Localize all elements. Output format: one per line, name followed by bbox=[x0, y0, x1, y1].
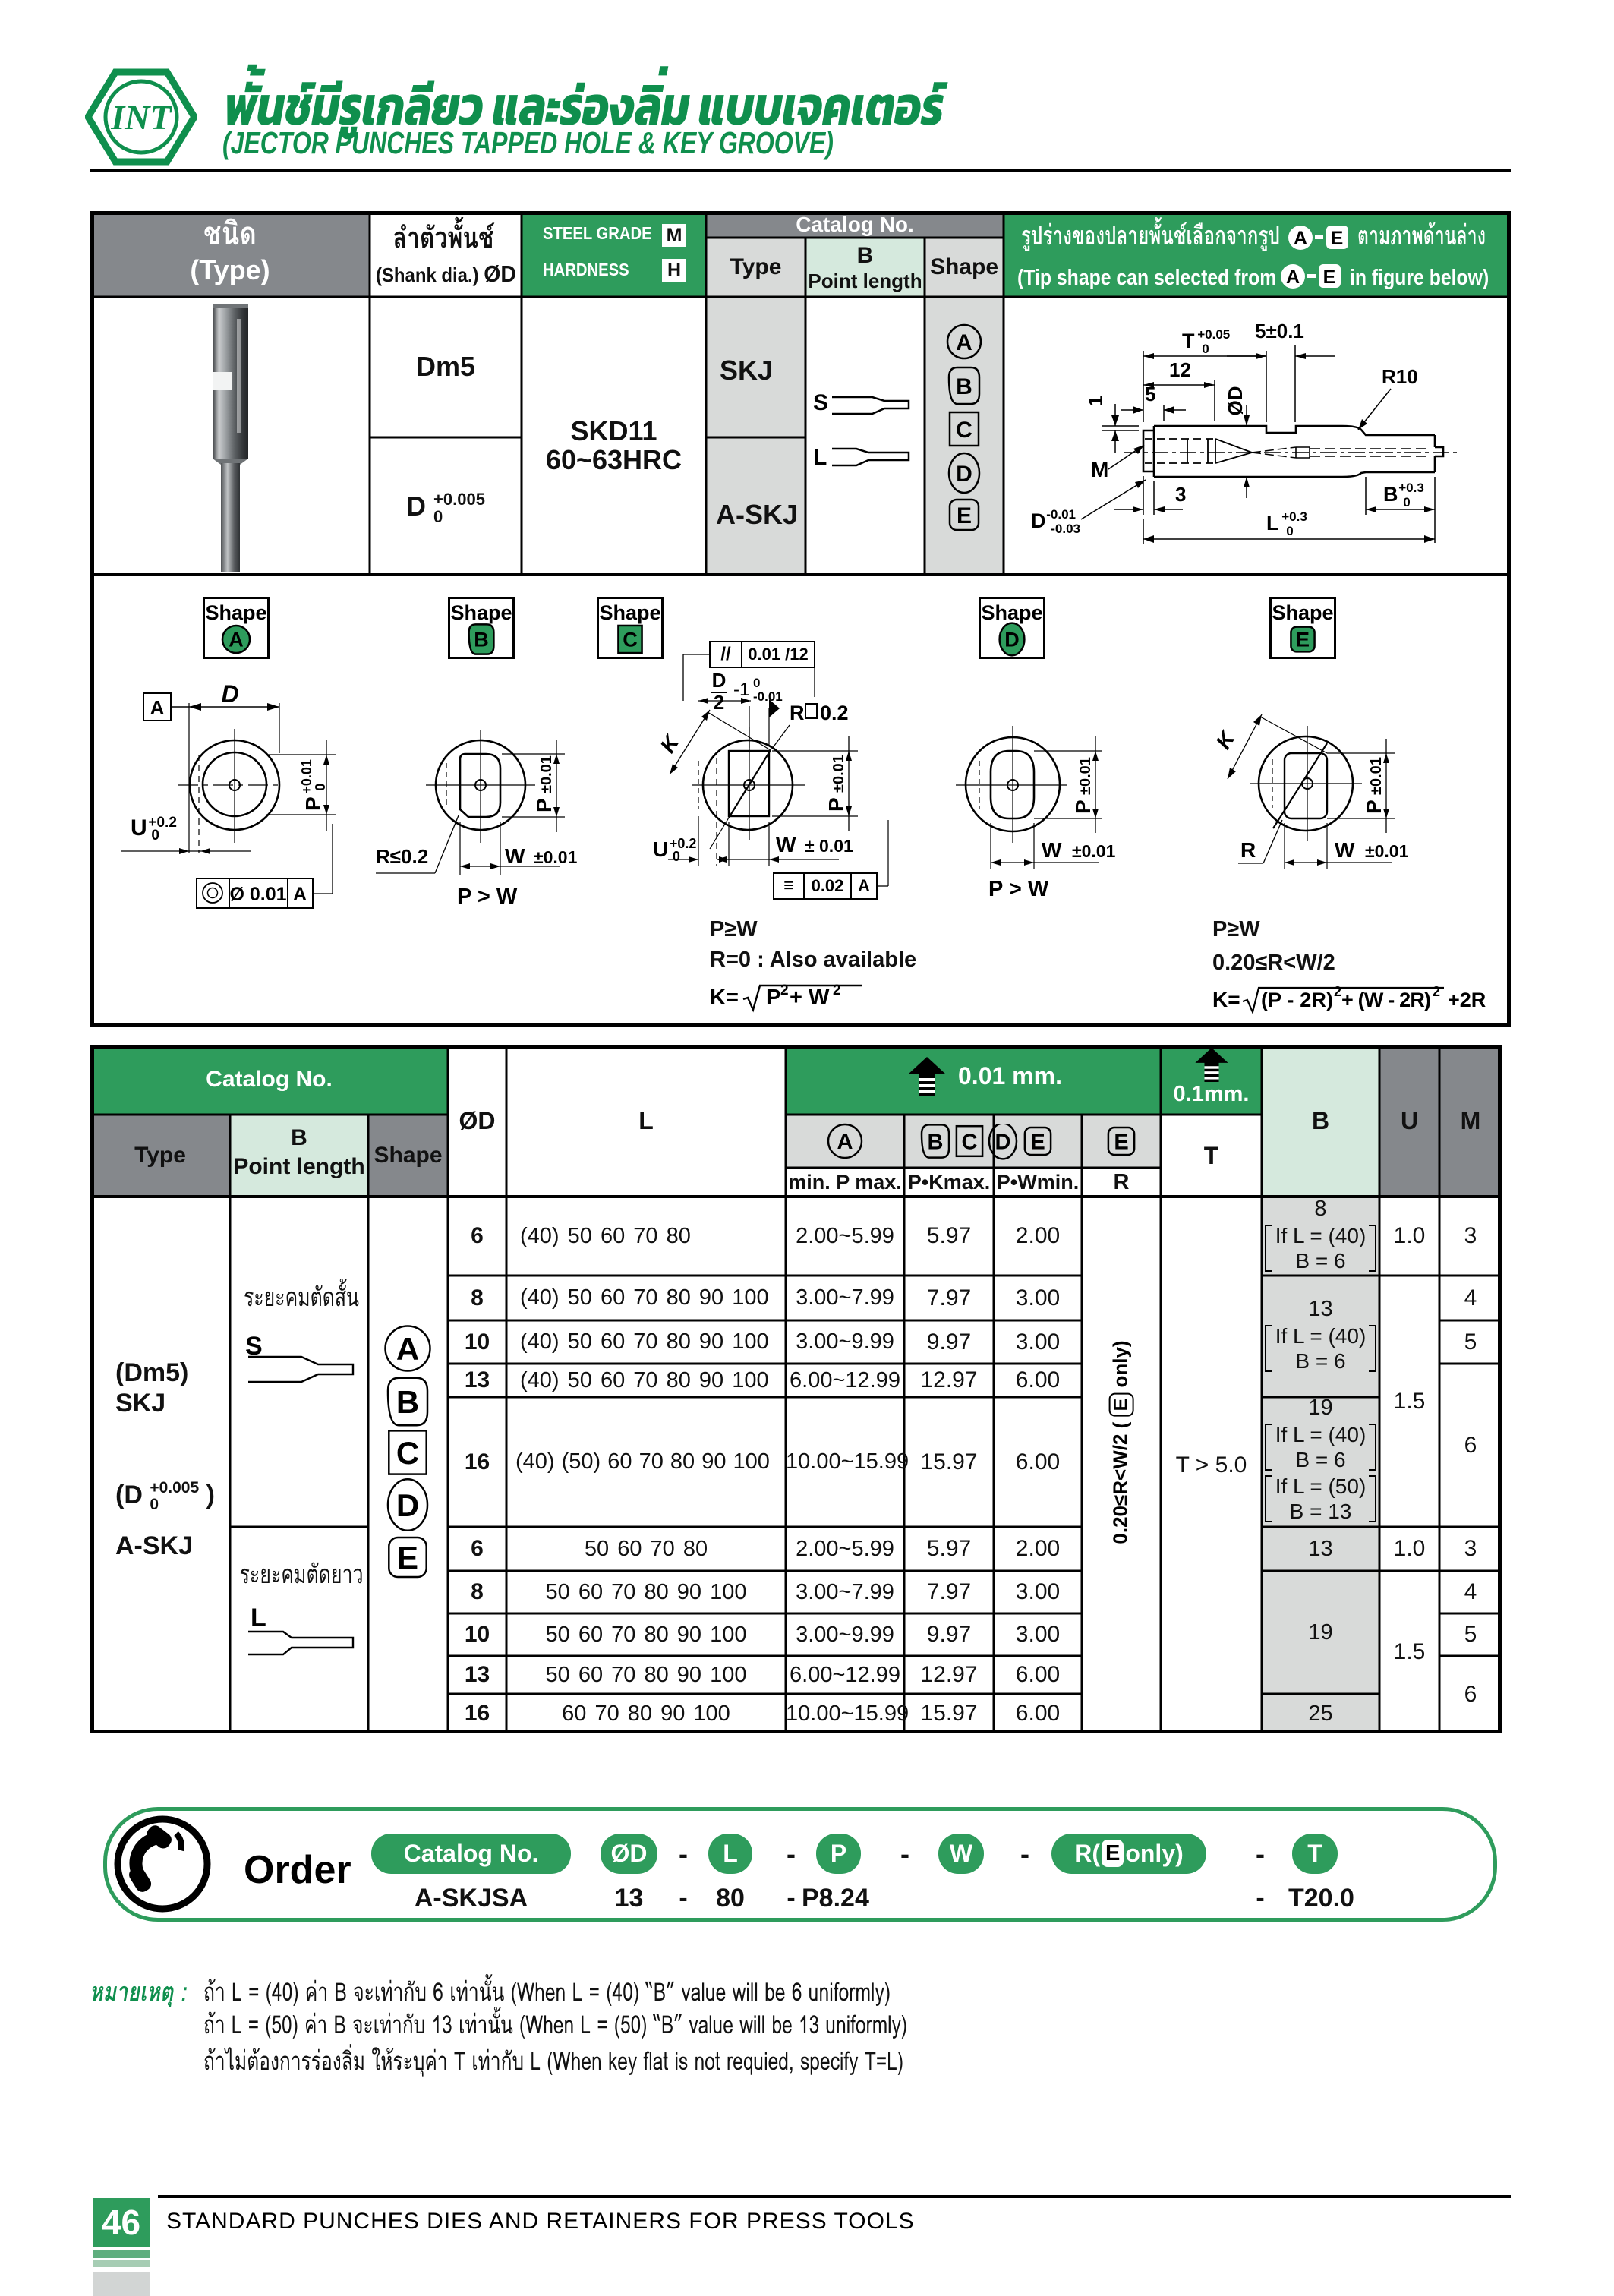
svg-text:A: A bbox=[858, 876, 870, 895]
svg-text:S: S bbox=[813, 390, 828, 415]
svg-text:C: C bbox=[396, 1435, 419, 1471]
svg-text:+0.3: +0.3 bbox=[1281, 509, 1307, 524]
svg-text:D: D bbox=[396, 1487, 419, 1523]
svg-text:P: P bbox=[1362, 799, 1385, 814]
svg-text:A: A bbox=[150, 696, 165, 719]
svg-text:A: A bbox=[229, 629, 244, 651]
svg-text:-1: -1 bbox=[733, 680, 749, 700]
svg-text:0: 0 bbox=[1202, 342, 1209, 356]
svg-text:0.02: 0.02 bbox=[812, 876, 844, 895]
svg-text:U: U bbox=[653, 837, 668, 861]
svg-text:W: W bbox=[1042, 838, 1062, 862]
svg-text:K: K bbox=[1211, 727, 1240, 753]
svg-text:L: L bbox=[1266, 512, 1279, 535]
svg-text:P: P bbox=[532, 798, 556, 812]
svg-text:0.01 /12: 0.01 /12 bbox=[748, 645, 809, 664]
svg-text:A: A bbox=[293, 884, 307, 905]
svg-text:Shape: Shape bbox=[1272, 601, 1333, 624]
svg-text:±0.01: ±0.01 bbox=[1368, 757, 1385, 795]
svg-text:0: 0 bbox=[1403, 495, 1410, 509]
svg-text:±0.01: ±0.01 bbox=[1365, 841, 1409, 861]
svg-text:-0.01: -0.01 bbox=[1046, 507, 1076, 522]
svg-text:12: 12 bbox=[1169, 358, 1191, 381]
svg-text:2: 2 bbox=[780, 982, 789, 998]
svg-text:K=: K= bbox=[710, 986, 739, 1010]
svg-text:A: A bbox=[956, 330, 972, 355]
svg-text:E: E bbox=[1114, 1130, 1128, 1154]
svg-text:U: U bbox=[131, 815, 147, 840]
svg-text:0.2: 0.2 bbox=[820, 702, 849, 724]
svg-text:(P - 2R): (P - 2R) bbox=[1261, 989, 1333, 1011]
svg-text:B: B bbox=[1383, 483, 1398, 506]
svg-text:R: R bbox=[790, 702, 805, 724]
svg-text:+0.3: +0.3 bbox=[1398, 481, 1424, 495]
svg-text:±0.01: ±0.01 bbox=[831, 755, 847, 793]
svg-text:B: B bbox=[396, 1384, 419, 1420]
svg-text:L: L bbox=[251, 1604, 266, 1632]
svg-text:W: W bbox=[505, 844, 525, 868]
svg-text:2: 2 bbox=[1433, 984, 1440, 999]
svg-text:-0.03: -0.03 bbox=[1051, 522, 1080, 536]
svg-text:Shape: Shape bbox=[205, 601, 266, 624]
svg-text:E: E bbox=[397, 1540, 418, 1575]
svg-text:± 0.01: ± 0.01 bbox=[805, 836, 853, 856]
svg-text:2: 2 bbox=[714, 691, 724, 714]
svg-text:INT: INT bbox=[110, 98, 172, 137]
svg-text:B: B bbox=[474, 629, 489, 651]
svg-text:E: E bbox=[1030, 1130, 1045, 1154]
svg-text:E: E bbox=[1331, 228, 1344, 249]
svg-text:A: A bbox=[837, 1130, 853, 1154]
svg-text://: // bbox=[720, 644, 731, 664]
svg-text:A: A bbox=[1286, 266, 1300, 288]
svg-text:M: M bbox=[1091, 458, 1108, 481]
svg-text:C: C bbox=[962, 1130, 978, 1154]
svg-text:K: K bbox=[655, 730, 684, 757]
svg-text:P: P bbox=[824, 797, 848, 812]
svg-text:P: P bbox=[1071, 799, 1095, 814]
svg-text:D: D bbox=[1031, 509, 1046, 532]
svg-text:D: D bbox=[956, 462, 972, 487]
svg-text:5: 5 bbox=[1145, 383, 1155, 405]
svg-text:C: C bbox=[956, 418, 972, 443]
svg-text:P: P bbox=[301, 796, 325, 811]
svg-text:R≤0.2: R≤0.2 bbox=[376, 845, 428, 868]
svg-text:ØD: ØD bbox=[1224, 386, 1247, 416]
svg-text:B: B bbox=[928, 1130, 944, 1154]
svg-text:L: L bbox=[813, 445, 827, 470]
svg-text:3: 3 bbox=[1175, 483, 1186, 506]
svg-text:0: 0 bbox=[753, 676, 760, 690]
svg-text:W: W bbox=[776, 833, 796, 856]
svg-text:±0.01: ±0.01 bbox=[1077, 757, 1094, 795]
svg-text:±0.01: ±0.01 bbox=[534, 847, 578, 867]
svg-text:B: B bbox=[956, 374, 972, 399]
svg-text:R: R bbox=[1240, 838, 1256, 862]
svg-text:+ (W - 2R): + (W - 2R) bbox=[1341, 989, 1431, 1011]
svg-text:K=: K= bbox=[1212, 988, 1240, 1011]
svg-text:E: E bbox=[957, 503, 972, 528]
svg-text:D: D bbox=[712, 669, 727, 692]
svg-text:Ø 0.01: Ø 0.01 bbox=[229, 884, 286, 905]
svg-text:A: A bbox=[396, 1331, 419, 1367]
svg-text:±0.01: ±0.01 bbox=[1072, 841, 1116, 861]
svg-text:W: W bbox=[1335, 838, 1355, 862]
svg-text:1: 1 bbox=[1084, 396, 1107, 406]
svg-text:P: P bbox=[766, 986, 780, 1010]
svg-text:2: 2 bbox=[833, 982, 841, 998]
svg-text:D: D bbox=[995, 1130, 1011, 1154]
svg-text:0: 0 bbox=[151, 828, 159, 844]
svg-text:2: 2 bbox=[1334, 984, 1341, 999]
svg-text:±0.01: ±0.01 bbox=[538, 755, 555, 793]
svg-text:0: 0 bbox=[1286, 524, 1293, 538]
svg-text:+ W: + W bbox=[790, 986, 830, 1010]
svg-text:Shape: Shape bbox=[599, 601, 660, 624]
svg-text:T: T bbox=[1182, 330, 1195, 352]
svg-text:Shape: Shape bbox=[450, 601, 512, 624]
svg-text:P > W: P > W bbox=[457, 885, 518, 909]
svg-text:Shape: Shape bbox=[981, 601, 1042, 624]
svg-text:+0.01: +0.01 bbox=[299, 759, 314, 794]
svg-text:P > W: P > W bbox=[988, 877, 1049, 901]
svg-text:-0.01: -0.01 bbox=[753, 689, 783, 704]
svg-text:E: E bbox=[1323, 266, 1336, 288]
svg-text:A: A bbox=[1294, 228, 1307, 249]
svg-text:E: E bbox=[1296, 629, 1310, 651]
svg-text:C: C bbox=[623, 629, 638, 651]
svg-text:0: 0 bbox=[313, 784, 328, 791]
svg-text:R10: R10 bbox=[1382, 365, 1418, 388]
svg-text:≡: ≡ bbox=[783, 875, 794, 896]
svg-text:D: D bbox=[221, 680, 238, 708]
svg-text:5±0.1: 5±0.1 bbox=[1255, 320, 1304, 342]
svg-text:+0.05: +0.05 bbox=[1197, 327, 1230, 342]
svg-text:+2R: +2R bbox=[1448, 989, 1486, 1011]
svg-text:0: 0 bbox=[673, 849, 680, 864]
svg-text:D: D bbox=[1004, 629, 1020, 651]
